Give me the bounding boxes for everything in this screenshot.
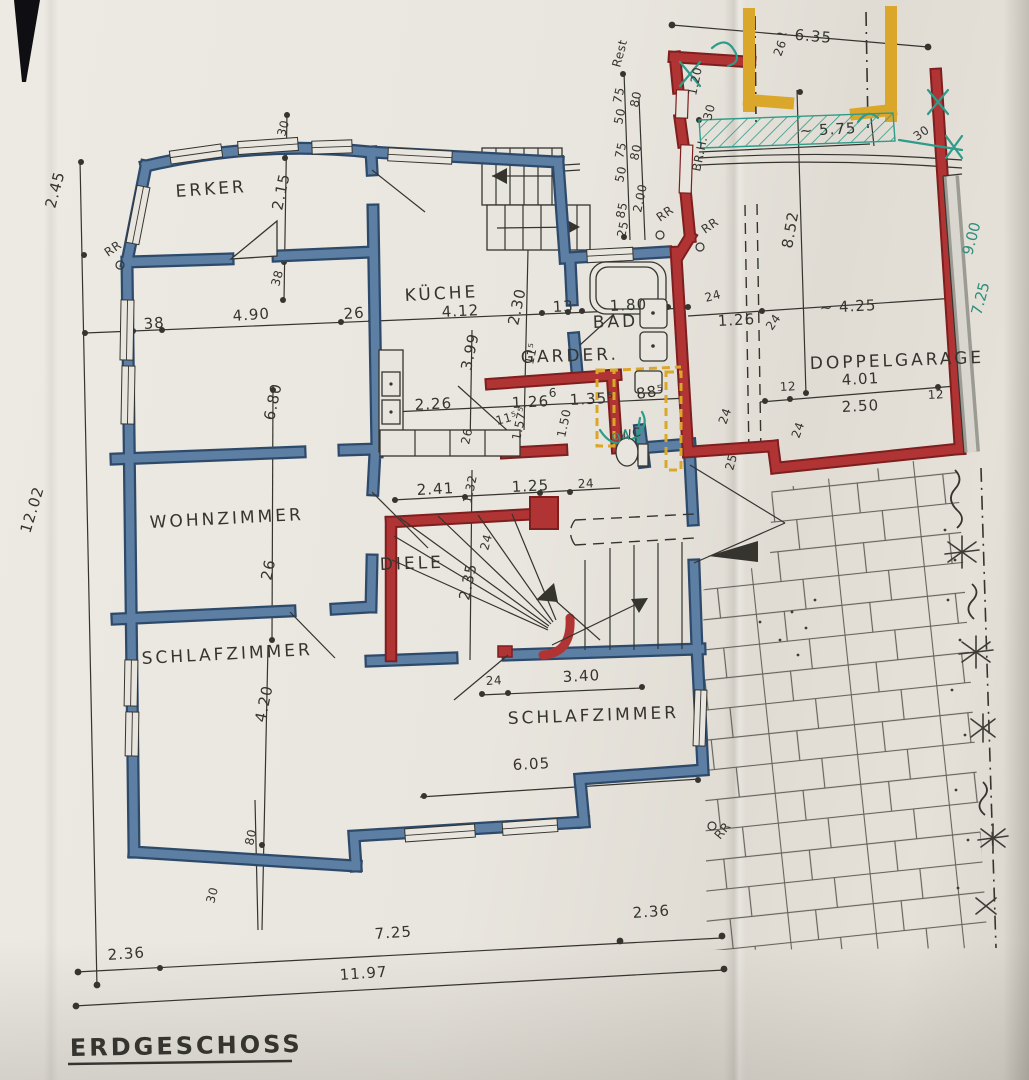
dimension-label: 4.01 (841, 369, 879, 389)
dimension-label: 50 (612, 165, 629, 184)
dimension-label: ~ 5.75 (799, 119, 857, 140)
dimension-label: 30 (911, 123, 932, 144)
dimension-label: 24 (716, 406, 735, 426)
dimension-label: 2.26 (414, 394, 452, 414)
room-label: SCHLAFZIMMER (507, 703, 679, 729)
dimension-label: 26 (257, 557, 279, 581)
dimension-label: 80 (242, 828, 259, 847)
dimension-label: 1.32 (460, 474, 480, 505)
dimension-label: 1.80 (609, 295, 647, 315)
dimension-label: 7.25 (374, 922, 413, 943)
floor-plan-photo: ERKERKÜCHEBADGARDER.WCWOHNZIMMERDIELESCH… (0, 0, 1029, 1080)
dimension-label: 2.00 (630, 183, 650, 214)
room-label: ERKER (175, 177, 247, 202)
dimension-label: 38 (268, 268, 286, 287)
dimension-label: 85 (613, 201, 630, 220)
dimension-label: 30 (203, 885, 221, 904)
dimension-label: 25 (722, 452, 740, 471)
dimension-label: 6.05 (512, 754, 550, 774)
dimension-label: 2.50 (841, 396, 879, 416)
dimension-label: 12 (927, 387, 944, 402)
dimension-label: 13 (552, 297, 574, 316)
dimension-label: 2.36 (632, 901, 671, 922)
dimension-label: RR (699, 215, 722, 237)
paving-area (703, 452, 988, 950)
dimension-label: Rest (609, 38, 630, 69)
dimension-label: 24 (703, 287, 722, 305)
interior-stair (392, 514, 695, 650)
dimension-label: 2.15 (268, 172, 293, 212)
dimension-label: 3.40 (562, 666, 600, 686)
dimension-label: 4.12 (441, 301, 479, 321)
dimension-label: 4.20 (251, 684, 276, 724)
dimension-label: 1.50 (554, 408, 574, 439)
room-label: SCHLAFZIMMER (141, 640, 313, 669)
dimension-label: 3.99 (457, 332, 482, 372)
dimension-label: RR (654, 203, 677, 225)
annotation-label: 7.25 (967, 280, 993, 317)
dimension-label: 8.52 (778, 210, 802, 250)
dimension-label: 12 (779, 379, 796, 394)
dimension-label: 2.36 (107, 943, 146, 964)
dimension-label: 1.25 (511, 476, 549, 496)
dimension-label: 25 (614, 220, 631, 239)
dimension-label: 80 (627, 90, 644, 109)
dimension-label: ~ 4.25 (819, 296, 877, 317)
dimension-label: 24 (789, 420, 808, 440)
dimension-label: 26 (343, 304, 365, 323)
dimension-label: 4.90 (232, 304, 271, 325)
dimension-label: 1.26 (717, 310, 755, 330)
dimension-label: 1.35⁵ (569, 389, 614, 409)
dimension-label: 2.35 (455, 562, 480, 602)
dimension-label: 38 (143, 314, 165, 333)
floor-plan-drawing: ERKERKÜCHEBADGARDER.WCWOHNZIMMERDIELESCH… (0, 0, 1029, 1080)
dimension-label: 30 (274, 118, 292, 137)
dimension-label: 2.41 (416, 479, 454, 499)
dimension-label: 6 (548, 386, 557, 400)
dimension-label: 2.45 (41, 169, 68, 210)
dimension-label: 12.02 (17, 484, 48, 535)
page-title: ERDGESCHOSS (70, 1030, 303, 1062)
plan-title-group: ERDGESCHOSS (68, 1030, 303, 1064)
room-label: WOHNZIMMER (149, 505, 304, 533)
dimension-label: 24 (763, 311, 784, 332)
dimension-label: BR.H. (689, 135, 710, 172)
room-label: DIELE (379, 553, 444, 575)
dimension-label: 6.80 (260, 382, 285, 422)
dimension-label: 11.97 (339, 963, 388, 984)
dimension-label: 24 (577, 476, 594, 491)
dimension-label: 24 (485, 673, 502, 688)
